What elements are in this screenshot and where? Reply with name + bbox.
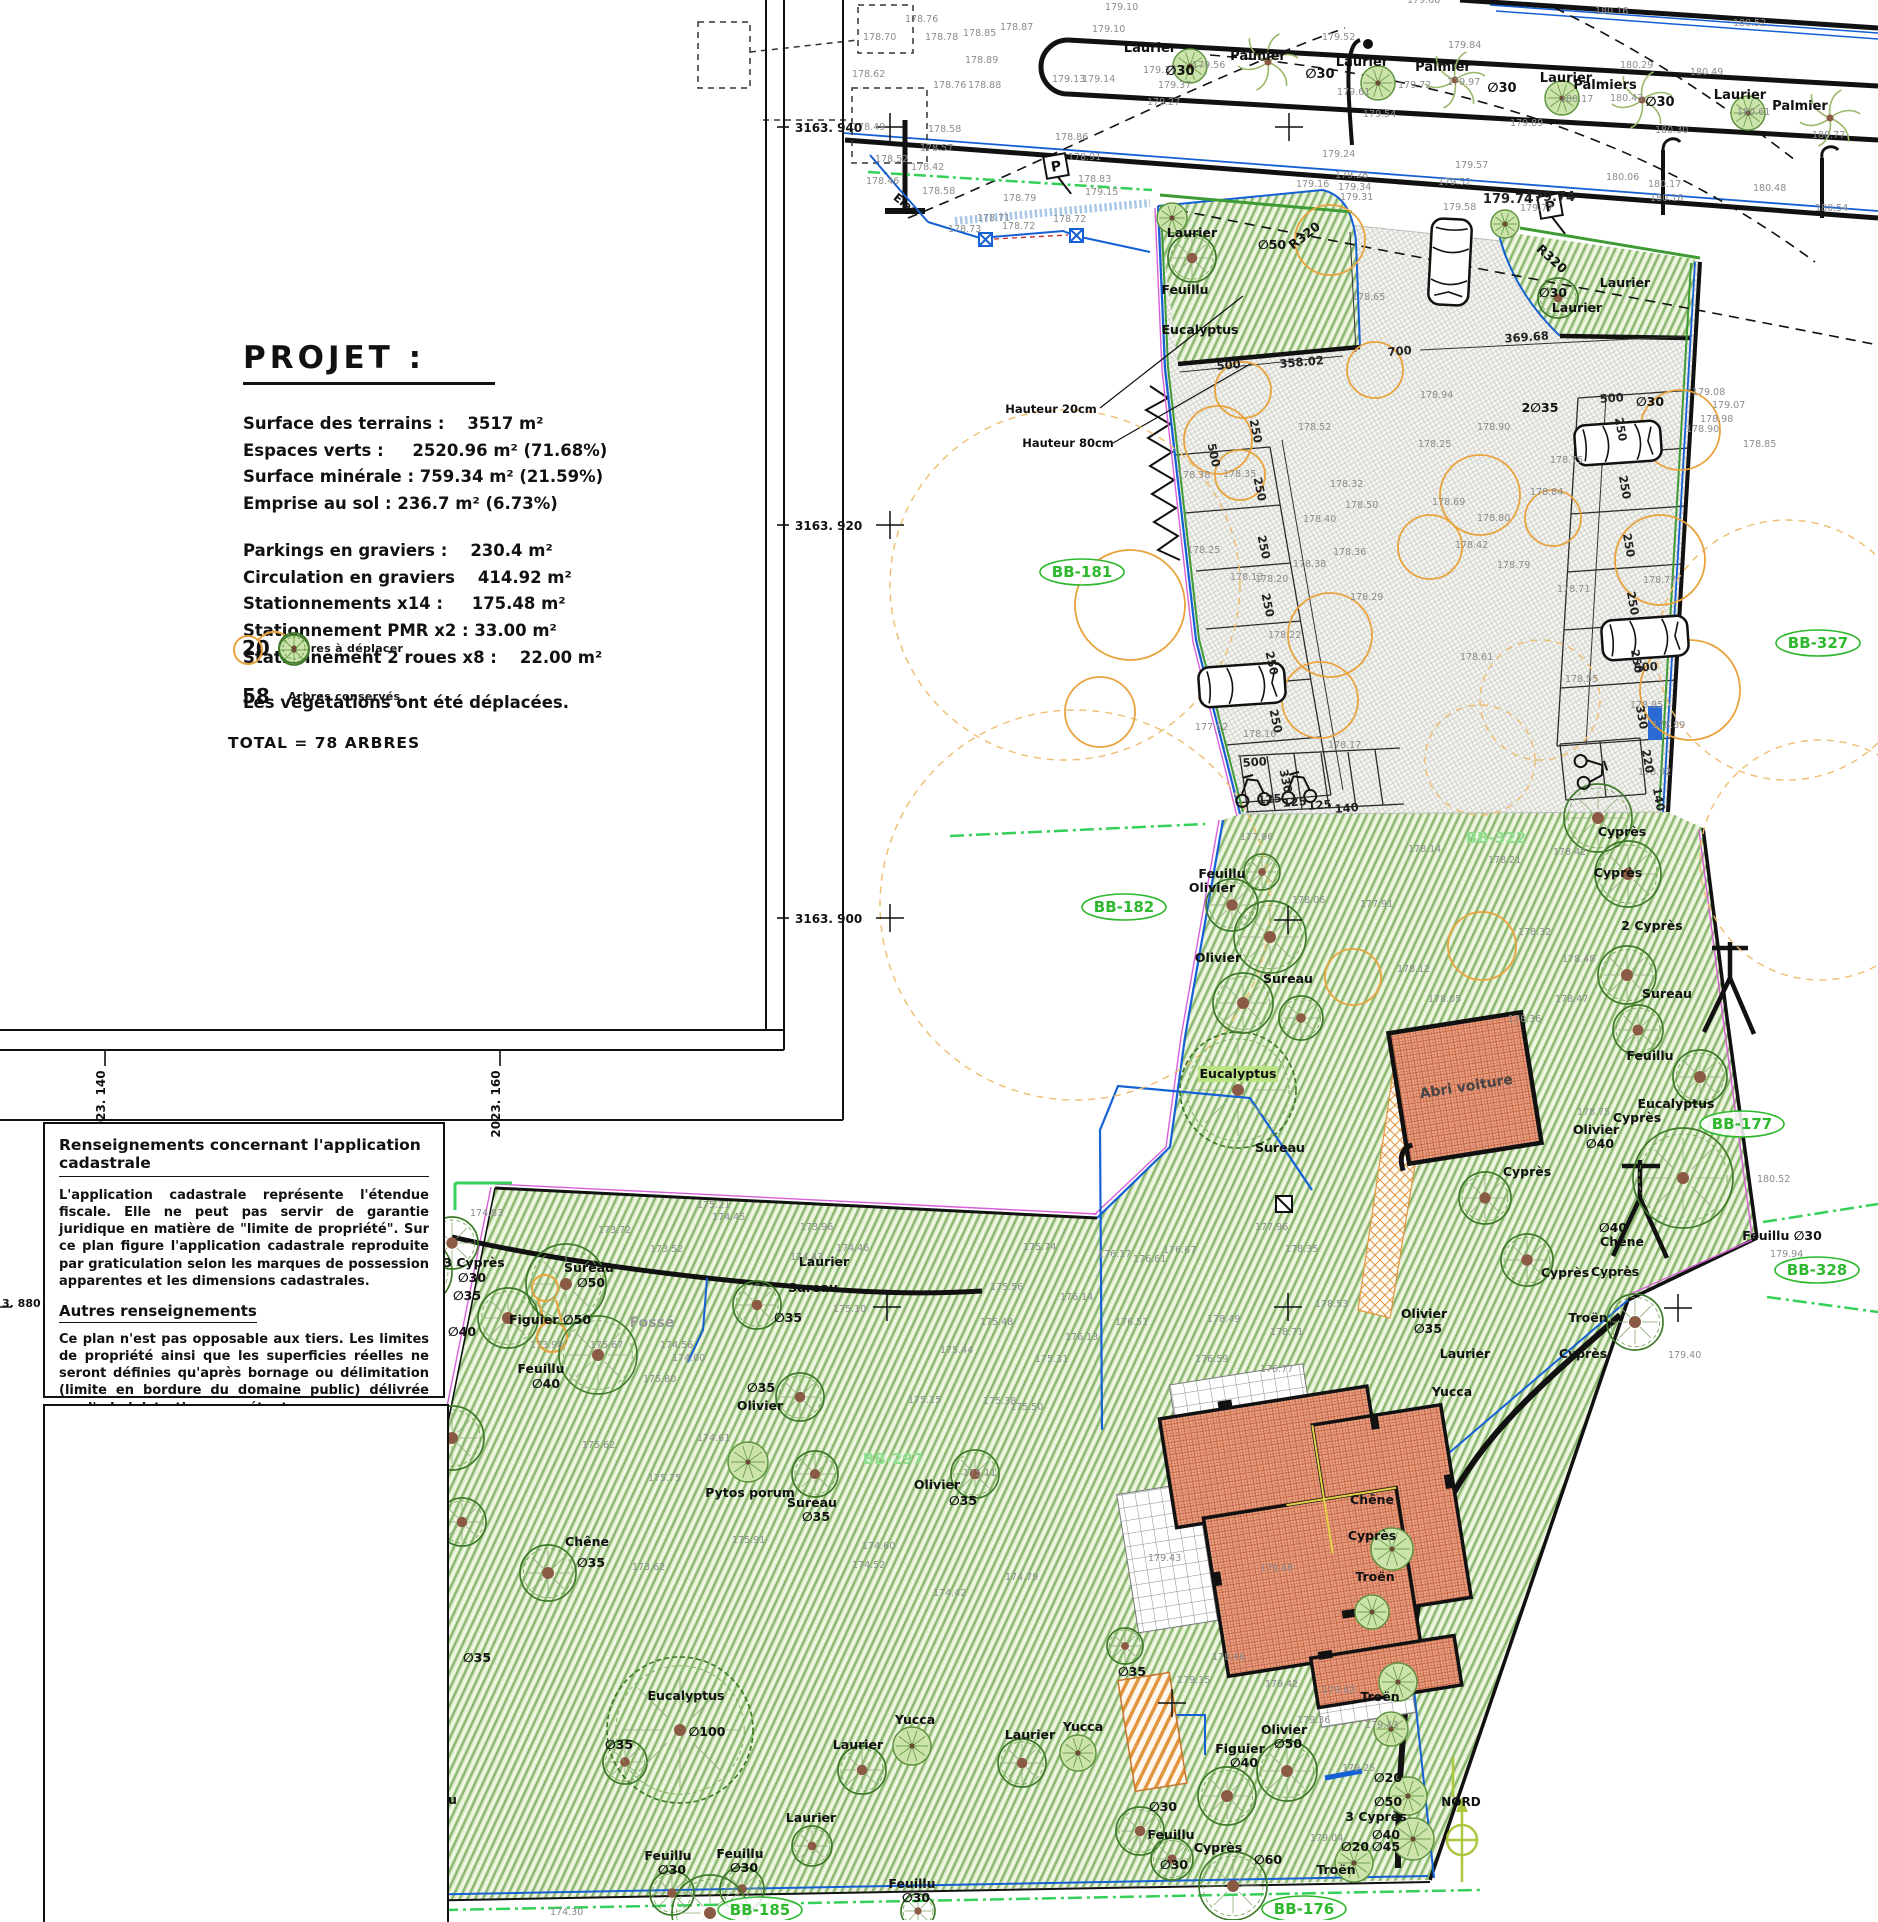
- parcel-label: BB-322: [1466, 829, 1526, 847]
- spot-elevation: 179.58: [1443, 202, 1476, 213]
- tree-label: Eucalyptus: [648, 1688, 725, 1703]
- spot-elevation: 176.59: [1195, 1354, 1228, 1365]
- tree-label: Laurier: [1440, 1346, 1491, 1361]
- tree-label: ∅30: [902, 1890, 930, 1905]
- green-patch-nw: [1158, 190, 1360, 364]
- tree-dense: [893, 1727, 931, 1765]
- cadastre-title: Renseignements concernant l'application …: [59, 1136, 429, 1177]
- spot-elevation: 178.25: [1187, 545, 1220, 556]
- tree-label: ∅35: [949, 1493, 977, 1508]
- dimension-label: 179.74: [1525, 190, 1575, 205]
- spot-elevation: 178.79: [1497, 560, 1530, 571]
- cadastre-paragraph: L'application cadastrale représente l'ét…: [59, 1187, 429, 1290]
- tree-label: ∅20: [1341, 1839, 1369, 1854]
- legend-count: 58: [242, 684, 288, 708]
- tree-label: ∅30: [1149, 1799, 1177, 1814]
- parcel-number: BB-328: [1787, 1261, 1847, 1279]
- parcel-number: BB-185: [730, 1901, 790, 1919]
- axis-label-horizontal: 2023. 160: [489, 1070, 503, 1137]
- spot-elevation: 178.32: [1518, 927, 1551, 938]
- road-plant-label: Palmier: [1772, 99, 1828, 114]
- spot-elevation: 178.87: [1000, 22, 1033, 33]
- tree-label: Eucalyptus: [1638, 1096, 1715, 1111]
- spot-elevation: 179.24: [1322, 149, 1355, 160]
- spot-elevation: 178.85: [1743, 439, 1776, 450]
- spot-elevation: 178.71: [1270, 1327, 1303, 1338]
- tree-label: Troën: [1568, 1310, 1607, 1325]
- spot-elevation: 178.73: [948, 224, 981, 235]
- spot-elevation: 178.69: [1432, 497, 1465, 508]
- spot-elevation: 179.28: [1335, 170, 1368, 181]
- tree-label: Yucca: [1431, 1384, 1472, 1399]
- spot-elevation: 178.90: [1686, 424, 1719, 435]
- spot-elevation: 179.14: [1082, 74, 1115, 85]
- spot-elevation: 178.29: [1350, 592, 1383, 603]
- spot-elevation: 178.38: [1177, 470, 1210, 481]
- tree-kept: [792, 1451, 838, 1497]
- spot-elevation: 174.00: [672, 1353, 705, 1364]
- parcel-number: BB-327: [1788, 634, 1848, 652]
- spot-elevation: 178.89: [965, 55, 998, 66]
- tree-label: Laurier: [799, 1254, 850, 1269]
- spot-elevation: 178.83: [1078, 174, 1111, 185]
- axis-label-vertical: 3163. 940: [795, 121, 862, 135]
- spot-elevation: 174.56: [660, 1340, 693, 1351]
- spot-elevation: 178.75: [1550, 455, 1583, 466]
- tree-kept: [838, 1746, 886, 1794]
- dimension-label: 140: [1334, 800, 1359, 816]
- spot-elevation: 174.52: [852, 1560, 885, 1571]
- car-symbol: [1601, 615, 1690, 661]
- spot-elevation: 178.48: [1562, 954, 1595, 965]
- spot-elevation: 179.40: [1668, 1350, 1701, 1361]
- spot-elevation: 178.40: [1303, 514, 1336, 525]
- spot-elevation: 179.68: [1407, 0, 1440, 6]
- spot-elevation: 178.75: [1577, 1107, 1610, 1118]
- tree-label: ∅40: [448, 1324, 476, 1339]
- spot-elevation: 177.91: [1360, 899, 1393, 910]
- dimension-label: 500: [1216, 357, 1241, 373]
- spot-elevation: 180.17: [1648, 179, 1681, 190]
- tree-kept: [792, 1826, 832, 1866]
- tree-label: ∅35: [453, 1288, 481, 1303]
- tree-label: ∅35: [1414, 1321, 1442, 1336]
- tree-label: ∅35: [802, 1509, 830, 1524]
- project-line: Emprise au sol : 236.7 m² (6.73%): [243, 491, 703, 518]
- tree-label: Pytos porum: [705, 1485, 795, 1500]
- tree-label: Sureau: [564, 1260, 614, 1275]
- tree-label: Cyprès: [1194, 1840, 1242, 1855]
- spot-elevation: 174.60: [862, 1541, 895, 1552]
- spot-elevation: 178.71: [1557, 584, 1590, 595]
- spot-elevation: 175.56: [990, 1282, 1023, 1293]
- tree-kept: [1279, 996, 1323, 1040]
- spot-elevation: 179.97: [1447, 77, 1480, 88]
- tree-label: Olivier: [1573, 1122, 1620, 1137]
- tree-label: Laurier: [786, 1810, 837, 1825]
- car-symbol: [1428, 218, 1472, 306]
- tree-kept: [998, 1739, 1046, 1787]
- spot-elevation: 179.56: [1192, 60, 1225, 71]
- spot-elevation: 178.61: [1460, 652, 1493, 663]
- spot-elevation: 180.61: [1737, 107, 1770, 118]
- tree-label: ∅50: [1274, 1736, 1302, 1751]
- spot-elevation: 178.38: [1293, 559, 1326, 570]
- survey-cross: [1275, 113, 1303, 141]
- spot-elevation: 178.76: [905, 14, 938, 25]
- tree-label: ∅40: [1599, 1220, 1627, 1235]
- spot-elevation: 179.52: [1322, 32, 1355, 43]
- tree-label: Cyprès: [1348, 1528, 1396, 1543]
- tree-label: Figuier ∅50: [509, 1312, 591, 1327]
- tree-label: Cyprès: [1613, 1110, 1661, 1125]
- tree-label: ∅35: [747, 1380, 775, 1395]
- spot-elevation: 180.16: [1650, 193, 1683, 204]
- tree-label: ∅20: [1374, 1770, 1402, 1785]
- tree-label: 2 Cyprès: [1621, 918, 1682, 933]
- parcel-label: BB-185: [718, 1897, 802, 1920]
- spot-elevation: 178.46: [866, 176, 899, 187]
- tree-label: ∅35: [463, 1650, 491, 1665]
- tree-label: Olivier: [737, 1398, 784, 1413]
- spot-elevation: 178.36: [1333, 547, 1366, 558]
- spot-elevation: 177.96: [1240, 832, 1273, 843]
- tree-label: Troën: [1316, 1862, 1355, 1877]
- survey-cross: [1664, 1294, 1692, 1322]
- tree-label: Feuillu: [644, 1848, 691, 1863]
- spot-elevation: 178.62: [852, 69, 885, 80]
- tree-label: Laurier: [1552, 300, 1603, 315]
- spot-elevation: 179.08: [1692, 387, 1725, 398]
- tree-label: Olivier: [1195, 950, 1242, 965]
- tree-label: Cyprès: [1503, 1164, 1551, 1179]
- spot-elevation: 176.13: [1065, 1332, 1098, 1343]
- annotation-label: Hauteur 20cm: [1005, 402, 1097, 416]
- tree-label: ∅50: [1374, 1794, 1402, 1809]
- tree-kept: [1168, 234, 1216, 282]
- spot-elevation: 175.75: [648, 1473, 681, 1484]
- spot-elevation: 179.48: [1260, 1563, 1293, 1574]
- spot-elevation: 178.32: [1330, 479, 1363, 490]
- project-line: Surface des terrains : 3517 m²: [243, 411, 703, 438]
- tree-label: 3 Cyprès: [443, 1255, 504, 1270]
- spot-elevation: 176.17: [1098, 1249, 1131, 1260]
- tree-label: ∅40: [532, 1376, 560, 1391]
- tree-label: Chêne: [1600, 1234, 1644, 1249]
- spot-elevation: 178.55: [1565, 674, 1598, 685]
- tree-label: ∅30: [658, 1862, 686, 1877]
- spot-elevation: 178.49: [1207, 1314, 1240, 1325]
- spot-elevation: 179.31: [1340, 192, 1373, 203]
- tree-kept: [776, 1373, 824, 1421]
- tree-label: Cyprès: [1541, 1265, 1589, 1280]
- tree-label: Cyprès: [1594, 865, 1642, 880]
- spot-elevation: 175.10: [833, 1304, 866, 1315]
- dimension-label: 125: [1257, 791, 1282, 807]
- spot-elevation: 174.46: [836, 1243, 869, 1254]
- spot-elevation: 178.47: [1555, 994, 1588, 1005]
- spot-elevation: 178.17: [1328, 740, 1361, 751]
- tree-label: Laurier: [833, 1737, 884, 1752]
- spot-elevation: 175.62: [582, 1440, 615, 1451]
- tree-kept: [1234, 901, 1306, 973]
- spot-elevation: 179.15: [1085, 187, 1118, 198]
- spot-elevation: 174.79: [1005, 1572, 1038, 1583]
- tree-dense: [1060, 1735, 1096, 1771]
- spot-elevation: 175.15: [908, 1395, 941, 1406]
- road-plant-label: Laurier: [1714, 88, 1767, 103]
- parcel-label: BB-181: [1040, 559, 1124, 585]
- empty-title-box: [43, 1404, 449, 1922]
- spot-elevation: 173.98: [530, 1340, 563, 1351]
- survey-cross: [876, 511, 904, 539]
- tree-to-move: [1065, 677, 1135, 747]
- tree-label: Sureau: [1255, 1140, 1305, 1155]
- road-plant-label: Palmier: [1230, 49, 1286, 64]
- spot-elevation: 175.21: [697, 1200, 730, 1211]
- spot-elevation: 180.06: [1606, 172, 1639, 183]
- tree-label: ∅100: [689, 1724, 726, 1739]
- tree-label: 2∅35: [1522, 400, 1559, 415]
- spot-elevation: 179.62: [1322, 1685, 1355, 1696]
- tree-label: ∅60: [1254, 1852, 1282, 1867]
- spot-elevation: 179.10: [1105, 2, 1138, 13]
- axis-label-edge: 3. 880: [2, 1297, 41, 1310]
- tree-dense: [1491, 210, 1519, 238]
- tree-label: Feuillu: [888, 1876, 935, 1891]
- spot-elevation: 178.65: [1352, 292, 1385, 303]
- spot-elevation: 174.61: [697, 1433, 730, 1444]
- tree-label: Olivier: [1189, 880, 1236, 895]
- spot-elevation: 179.37: [1158, 80, 1191, 91]
- spot-elevation: 178.70: [863, 32, 896, 43]
- parcel-number: BB-177: [1712, 1115, 1772, 1133]
- spot-elevation: 175.67: [590, 1340, 623, 1351]
- road-plant-label: Palmiers: [1573, 78, 1637, 93]
- tree-label: ∅40: [1586, 1136, 1614, 1151]
- tree-label: ∅35: [605, 1737, 633, 1752]
- dimension-label: 700: [1387, 343, 1412, 359]
- tree-label: Yucca: [1062, 1719, 1103, 1734]
- tree-label: Laurier: [1167, 225, 1218, 240]
- tree-kept: [520, 1545, 576, 1601]
- spot-elevation: 179.10: [1092, 24, 1125, 35]
- tree-label: ∅45: [1372, 1839, 1400, 1854]
- spot-elevation: 180.16: [1595, 6, 1628, 17]
- spot-elevation: 174.83: [470, 1208, 503, 1219]
- dimension-label: 125: [1307, 797, 1332, 813]
- spot-elevation: 179.72: [1398, 80, 1431, 91]
- tree-label: ∅35: [577, 1555, 605, 1570]
- axis-label-vertical: 3163. 920: [795, 519, 862, 533]
- spot-elevation: 179.54: [1363, 109, 1396, 120]
- tree-kept: [1459, 1172, 1511, 1224]
- tree-label: ∅30: [1636, 394, 1664, 409]
- tree-label: ∅50: [577, 1275, 605, 1290]
- cadastre-info-box: Renseignements concernant l'application …: [43, 1122, 445, 1398]
- project-line: Espaces verts : 2520.96 m² (71.68%): [243, 438, 703, 465]
- parcel-label: BB-176: [1262, 1896, 1346, 1920]
- tree-kept: [1107, 1628, 1143, 1664]
- spot-elevation: 178.91: [1068, 152, 1101, 163]
- dimension-label: 125: [1282, 794, 1307, 810]
- spot-elevation: 178.58: [922, 186, 955, 197]
- spot-elevation: 179.42: [1265, 1679, 1298, 1690]
- spot-elevation: 178.36: [1508, 1014, 1541, 1025]
- tree-label: 3 Cyprès: [1345, 1809, 1406, 1824]
- cadastre-subtitle: Autres renseignements: [59, 1302, 257, 1323]
- tree-label: Feuillu: [1626, 1048, 1673, 1063]
- spot-elevation: 178.53: [1315, 1299, 1348, 1310]
- tree-label: Sureau: [1263, 971, 1313, 986]
- spot-elevation: 180.30: [1655, 125, 1688, 136]
- dimension-label: 500: [1599, 390, 1624, 406]
- spot-elevation: 173.96: [800, 1222, 833, 1233]
- spot-elevation: 178.85: [963, 28, 996, 39]
- tree-label: Cyprès: [1559, 1346, 1607, 1361]
- spot-elevation: 178.57: [920, 143, 953, 154]
- tree-label: Olivier: [1401, 1306, 1448, 1321]
- tree-label: Sureau: [787, 1495, 837, 1510]
- spot-elevation: 179.27: [1147, 97, 1180, 108]
- dimension-label: 500: [1242, 754, 1267, 770]
- spot-elevation: 178.80: [1477, 513, 1510, 524]
- tree-label: Yucca: [894, 1712, 935, 1727]
- spot-elevation: 174.30: [550, 1907, 583, 1918]
- spot-elevation: 179.04: [1310, 1833, 1343, 1844]
- tree-label: ∅35: [774, 1310, 802, 1325]
- existing-buildings-dashed: [698, 5, 927, 163]
- spot-elevation: 178.84: [1530, 487, 1563, 498]
- tree-label: Feuillu: [1147, 1827, 1194, 1842]
- spot-elevation: 178.46: [1212, 1652, 1245, 1663]
- annotation-label: NORD: [1441, 1795, 1480, 1809]
- tree-label: Laurier: [1005, 1727, 1056, 1742]
- legend-row-kept: 58 Arbres conservés: [228, 672, 648, 720]
- parcel-number: BB-297: [863, 1450, 923, 1468]
- tree-label: Cyprès: [1598, 824, 1646, 839]
- tree-label: Laurier: [1600, 275, 1651, 290]
- tree-label: ∅30: [1539, 285, 1567, 300]
- parcel-label: BB-297: [863, 1450, 923, 1468]
- spot-elevation: 176.67: [1163, 1245, 1196, 1256]
- spot-elevation: 179.15: [1177, 1675, 1210, 1686]
- annotation-label: Fossé: [630, 1315, 675, 1331]
- parcel-number: BB-176: [1274, 1900, 1334, 1918]
- legend-icon-kept: [228, 624, 318, 668]
- tree-label: Chêne: [565, 1534, 609, 1549]
- spot-elevation: 178.79: [1003, 193, 1036, 204]
- legend-total: TOTAL = 78 ARBRES: [228, 734, 648, 752]
- spot-elevation: 178.52: [875, 154, 908, 165]
- parcel-label: BB-182: [1082, 894, 1166, 920]
- road-plant-label: ∅30: [1487, 81, 1516, 96]
- spot-elevation: 178.72: [1002, 221, 1035, 232]
- spot-elevation: 175.48: [980, 1317, 1013, 1328]
- tree-label: Feuillu: [1161, 282, 1208, 297]
- tree-label: ∅30: [730, 1860, 758, 1875]
- spot-elevation: 178.86: [1055, 132, 1088, 143]
- spot-elevation: 178.94: [1420, 390, 1453, 401]
- spot-elevation: 178.78: [925, 32, 958, 43]
- spot-elevation: 180.29: [1620, 60, 1653, 71]
- axis-label-vertical: 3163. 900: [795, 912, 862, 926]
- spot-elevation: 174.45: [712, 1212, 745, 1223]
- tree-label: Sureau: [1642, 986, 1692, 1001]
- spot-elevation: 178.72: [1053, 214, 1086, 225]
- spot-elevation: 175.74: [1023, 1242, 1056, 1253]
- spot-elevation: 180.52: [1757, 1174, 1790, 1185]
- spot-elevation: 178.25: [1418, 439, 1451, 450]
- spot-elevation: 176.51: [1115, 1317, 1148, 1328]
- spot-elevation: 180.43: [1610, 93, 1643, 104]
- tree-label: Eucalyptus: [1162, 322, 1239, 337]
- tree-kept: [1633, 1128, 1733, 1228]
- spot-elevation: 180.48: [1753, 183, 1786, 194]
- parcel-label: BB-328: [1775, 1257, 1859, 1283]
- spot-elevation: 175.11: [963, 1468, 996, 1479]
- tree-label: Feuillu ∅30: [1742, 1228, 1822, 1243]
- road-plant-label: Laurier: [1336, 55, 1389, 70]
- tree-label: Chêne: [1350, 1492, 1394, 1507]
- parcel-number: BB-182: [1094, 898, 1154, 916]
- spot-elevation: 180.17: [1560, 94, 1593, 105]
- tree-label: ∅35: [1118, 1664, 1146, 1679]
- parcel-label: BB-177: [1700, 1111, 1784, 1137]
- road-plant-label: Laurier: [1124, 41, 1177, 56]
- tree-label: ∅40: [1230, 1755, 1258, 1770]
- spot-elevation: 178.90: [1477, 422, 1510, 433]
- tree-label: Figuier: [1215, 1741, 1265, 1756]
- parcel-label: BB-327: [1776, 630, 1860, 656]
- spot-elevation: 179.61: [1337, 87, 1370, 98]
- spot-elevation: 179.52: [1438, 177, 1471, 188]
- spot-elevation: 173.62: [632, 1562, 665, 1573]
- legend-label: Arbres conservés: [288, 690, 400, 703]
- spot-elevation: 174.42: [933, 1588, 966, 1599]
- road-plant-label: Palmier: [1415, 60, 1471, 75]
- spot-elevation: 177.92: [1195, 722, 1228, 733]
- spot-elevation: 175.80: [643, 1374, 676, 1385]
- tree-label: Feuillu: [1198, 866, 1245, 881]
- spot-elevation: 176.77: [1260, 1364, 1293, 1375]
- road-plant-label: ∅30: [1165, 64, 1194, 79]
- spot-elevation: 176.61: [1133, 1254, 1166, 1265]
- spot-elevation: 178.42: [911, 162, 944, 173]
- spot-elevation: 175.91: [732, 1535, 765, 1546]
- project-title: PROJET :: [243, 340, 495, 385]
- project-line: Stationnements x14 : 175.48 m²: [243, 591, 703, 618]
- spot-elevation: 178.20: [1255, 574, 1288, 585]
- spot-elevation: 178.89: [1652, 720, 1685, 731]
- spot-elevation: 179.13: [1052, 74, 1085, 85]
- spot-elevation: 178.76: [933, 80, 966, 91]
- spot-elevation: 178.77: [1643, 575, 1676, 586]
- survey-cross: [876, 904, 904, 932]
- project-line: Circulation en graviers 414.92 m²: [243, 565, 703, 592]
- spot-elevation: 175.44: [940, 1345, 973, 1356]
- annotation-label: Hauteur 80cm: [1022, 436, 1114, 450]
- tree-dense: [728, 1442, 768, 1482]
- spot-elevation: 180.52: [1733, 18, 1766, 29]
- spot-elevation: 180.77: [1812, 130, 1845, 141]
- tree-label: Sureau: [788, 1280, 838, 1295]
- spot-elevation: 179.07: [1712, 400, 1745, 411]
- spot-elevation: 178.88: [968, 80, 1001, 91]
- spot-elevation: 179.43: [1365, 1720, 1398, 1731]
- spot-elevation: 178.52: [1298, 422, 1331, 433]
- spot-elevation: 179.25: [1342, 1763, 1375, 1774]
